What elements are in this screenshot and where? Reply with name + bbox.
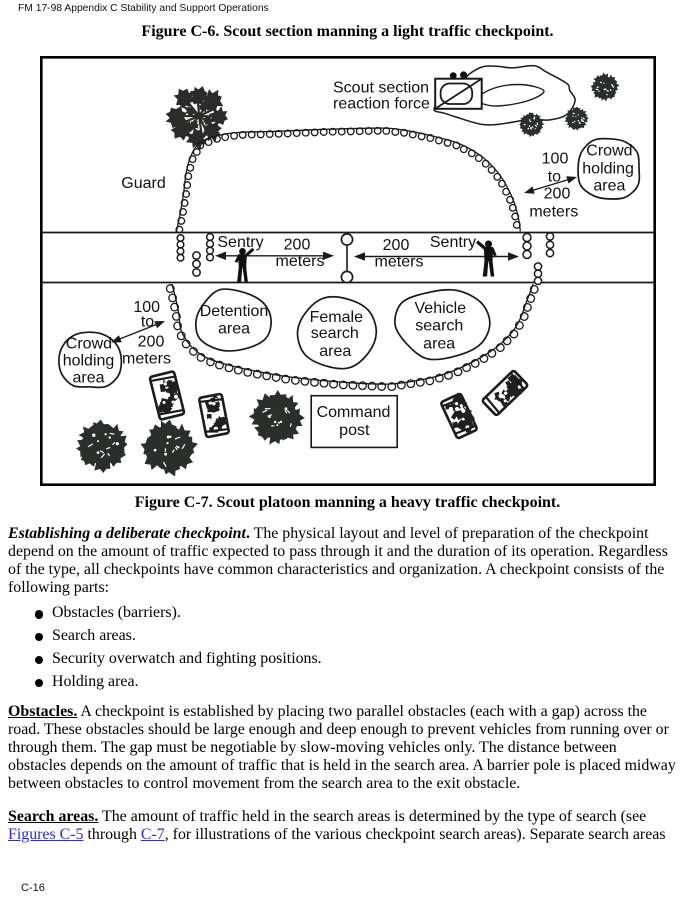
- svg-text:200: 200: [544, 186, 571, 203]
- svg-text:holding: holding: [582, 161, 634, 178]
- svg-text:Detention: Detention: [200, 303, 269, 320]
- svg-text:area: area: [593, 178, 625, 195]
- svg-text:area: area: [72, 370, 104, 387]
- svg-text:Crowd: Crowd: [66, 336, 112, 353]
- svg-text:Command: Command: [317, 404, 391, 421]
- svg-text:200: 200: [383, 237, 410, 254]
- svg-text:200: 200: [284, 237, 311, 254]
- svg-text:holding: holding: [63, 353, 115, 370]
- svg-text:area: area: [423, 336, 455, 353]
- svg-text:search: search: [415, 318, 463, 335]
- svg-text:Female: Female: [310, 309, 363, 326]
- svg-text:Scout section: Scout section: [333, 80, 429, 97]
- svg-text:reaction force: reaction force: [333, 96, 430, 113]
- svg-text:Guard: Guard: [121, 175, 165, 192]
- svg-text:Crowd: Crowd: [586, 143, 632, 160]
- svg-text:Sentry: Sentry: [430, 234, 476, 251]
- svg-text:200: 200: [138, 333, 165, 350]
- svg-text:area: area: [319, 343, 351, 360]
- svg-text:area: area: [218, 321, 250, 338]
- svg-text:Vehicle: Vehicle: [415, 300, 467, 317]
- svg-text:meters: meters: [529, 204, 578, 221]
- svg-text:Sentry: Sentry: [217, 234, 263, 251]
- svg-text:100: 100: [542, 151, 569, 168]
- svg-text:post: post: [339, 422, 370, 439]
- svg-text:meters: meters: [122, 351, 171, 368]
- svg-text:search: search: [311, 325, 359, 342]
